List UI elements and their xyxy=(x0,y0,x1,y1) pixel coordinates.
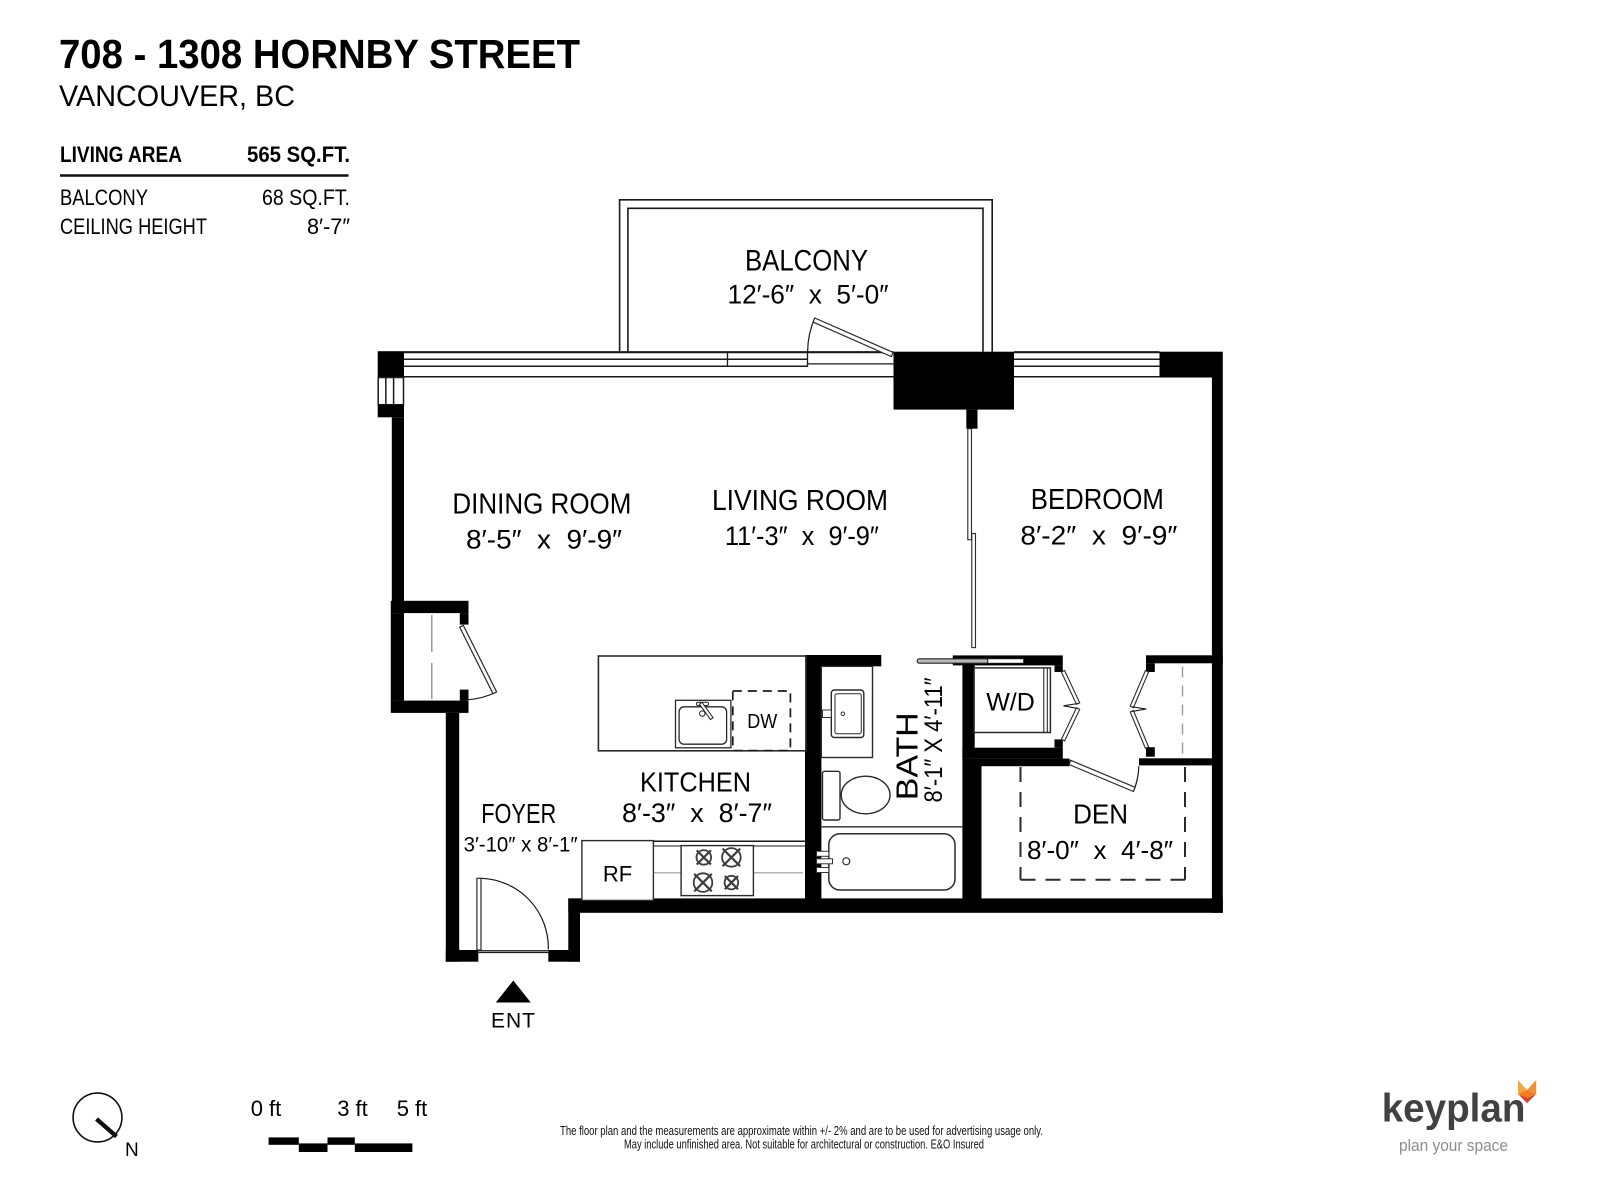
svg-text:BALCONY: BALCONY xyxy=(745,245,868,278)
svg-text:BEDROOM: BEDROOM xyxy=(1031,484,1164,516)
svg-text:3 ft: 3 ft xyxy=(337,1096,368,1121)
svg-text:DEN: DEN xyxy=(1073,798,1128,829)
svg-text:8′-7″: 8′-7″ xyxy=(307,214,350,239)
svg-text:LIVING AREA: LIVING AREA xyxy=(60,142,182,167)
svg-text:5 ft: 5 ft xyxy=(397,1096,428,1121)
svg-text:565 SQ.FT.: 565 SQ.FT. xyxy=(247,142,350,167)
svg-text:BALCONY: BALCONY xyxy=(60,185,148,210)
svg-text:DW: DW xyxy=(747,711,777,733)
svg-text:DINING ROOM: DINING ROOM xyxy=(452,489,631,521)
svg-text:0 ft: 0 ft xyxy=(251,1096,282,1121)
svg-text:68 SQ.FT.: 68 SQ.FT. xyxy=(262,185,350,210)
svg-text:8′-1″ X 4′-11″: 8′-1″ X 4′-11″ xyxy=(920,677,948,802)
svg-text:FOYER: FOYER xyxy=(481,798,556,829)
svg-text:8′-2″ x 9′-9″: 8′-2″ x 9′-9″ xyxy=(1020,520,1177,550)
svg-text:May include unfinished area. N: May include unfinished area. Not suitabl… xyxy=(624,1138,984,1152)
svg-text:RF: RF xyxy=(603,862,632,887)
svg-text:VANCOUVER, BC: VANCOUVER, BC xyxy=(59,80,295,113)
svg-text:N: N xyxy=(125,1140,139,1161)
svg-text:The floor plan and the measure: The floor plan and the measurements are … xyxy=(560,1124,1043,1138)
svg-text:8′-5″ x 9′-9″: 8′-5″ x 9′-9″ xyxy=(466,525,622,555)
svg-text:8′-3″ x 8′-7″: 8′-3″ x 8′-7″ xyxy=(622,798,772,828)
svg-text:12′-6″ x 5′-0″: 12′-6″ x 5′-0″ xyxy=(728,280,889,310)
svg-text:KITCHEN: KITCHEN xyxy=(640,767,751,798)
svg-text:708 - 1308 HORNBY STREET: 708 - 1308 HORNBY STREET xyxy=(59,31,580,77)
svg-text:ENT: ENT xyxy=(491,1010,536,1033)
svg-text:8′-0″ x 4′-8″: 8′-0″ x 4′-8″ xyxy=(1027,835,1173,865)
svg-text:keyplan: keyplan xyxy=(1382,1087,1526,1131)
svg-text:11′-3″ x 9′-9″: 11′-3″ x 9′-9″ xyxy=(725,521,879,551)
svg-text:CEILING HEIGHT: CEILING HEIGHT xyxy=(60,214,207,239)
svg-text:LIVING ROOM: LIVING ROOM xyxy=(712,485,888,517)
svg-text:W/D: W/D xyxy=(986,689,1035,717)
svg-text:plan your space: plan your space xyxy=(1399,1137,1508,1155)
svg-text:3′-10″ x 8′-1″: 3′-10″ x 8′-1″ xyxy=(464,833,579,856)
